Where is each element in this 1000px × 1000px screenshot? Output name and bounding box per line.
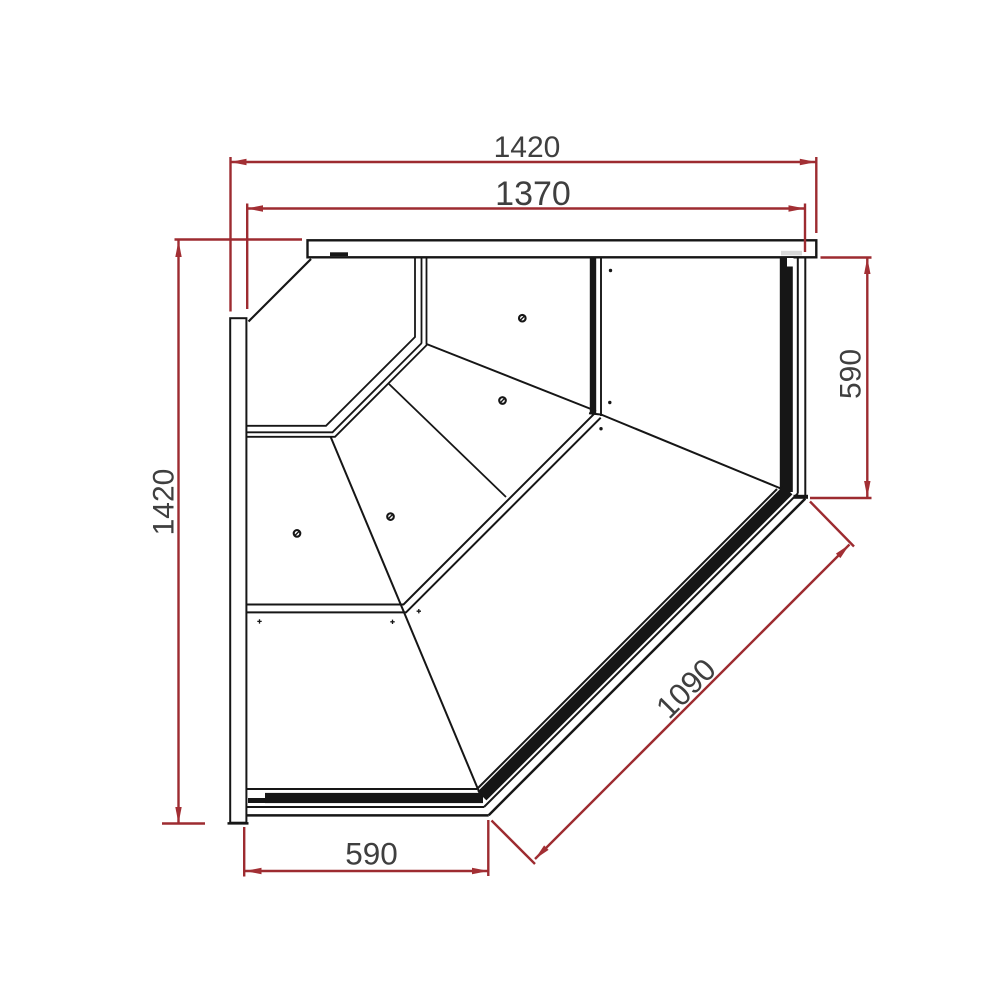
svg-text:1420: 1420 (148, 469, 181, 536)
svg-text:1370: 1370 (495, 175, 571, 213)
svg-text:590: 590 (345, 836, 398, 872)
svg-text:1420: 1420 (494, 131, 561, 164)
svg-text:590: 590 (835, 349, 868, 399)
